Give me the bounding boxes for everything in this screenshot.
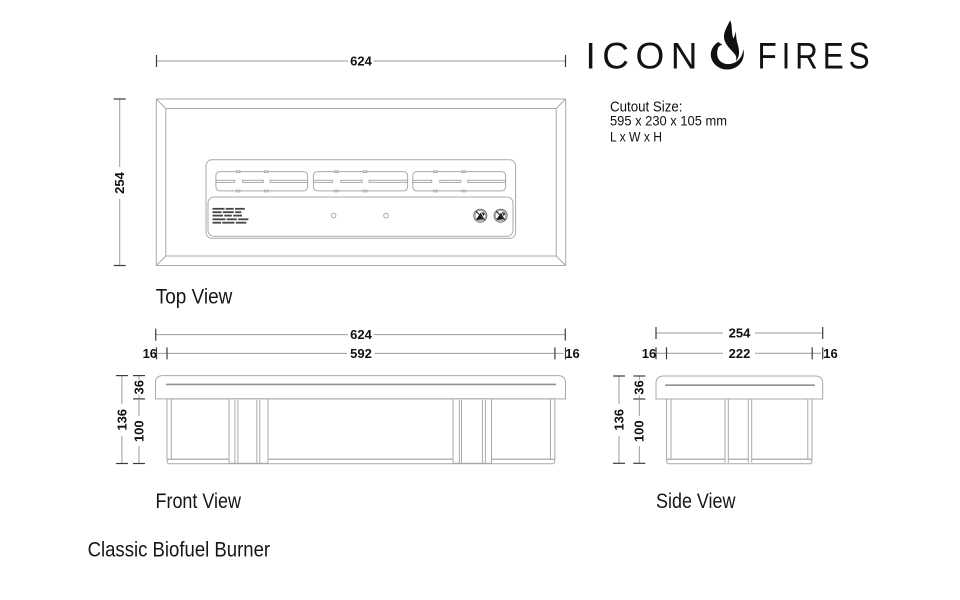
svg-text:Classic Biofuel Burner: Classic Biofuel Burner <box>88 539 271 562</box>
svg-text:36: 36 <box>632 380 647 394</box>
svg-text:36: 36 <box>131 380 146 394</box>
svg-text:100: 100 <box>131 420 146 442</box>
svg-text:100: 100 <box>632 420 647 442</box>
svg-text:ICON: ICON <box>586 36 698 77</box>
svg-text:254: 254 <box>112 171 127 193</box>
svg-text:595 x 230 x 105 mm: 595 x 230 x 105 mm <box>610 114 727 129</box>
svg-text:624: 624 <box>350 327 372 342</box>
svg-text:16: 16 <box>642 346 656 361</box>
svg-text:16: 16 <box>143 346 157 361</box>
svg-text:254: 254 <box>729 326 751 341</box>
svg-text:592: 592 <box>350 346 372 361</box>
svg-text:FIRES: FIRES <box>758 36 870 77</box>
svg-text:136: 136 <box>611 409 626 431</box>
svg-text:Side View: Side View <box>656 490 736 513</box>
svg-text:16: 16 <box>823 346 837 361</box>
svg-text:16: 16 <box>565 346 579 361</box>
svg-text:L x W x H: L x W x H <box>610 130 662 145</box>
svg-text:Front View: Front View <box>156 490 242 513</box>
svg-text:624: 624 <box>350 54 372 69</box>
svg-text:Top View: Top View <box>156 286 233 309</box>
svg-text:136: 136 <box>114 409 129 431</box>
svg-text:222: 222 <box>729 346 751 361</box>
